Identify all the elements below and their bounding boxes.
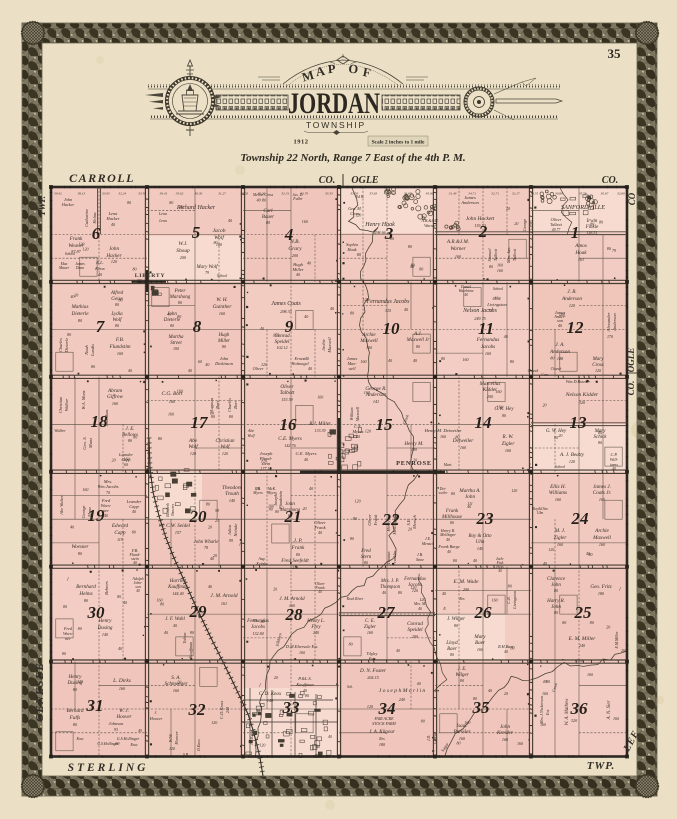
svg-text:Martha: Martha [168, 335, 185, 340]
svg-text:80: 80 [190, 630, 194, 635]
svg-text:40: 40 [442, 591, 446, 596]
svg-text:200: 200 [412, 634, 419, 639]
svg-text:15: 15 [376, 415, 394, 434]
svg-text:80: 80 [554, 588, 558, 593]
svg-text:315: 315 [385, 308, 391, 313]
svg-text:40: 40 [132, 509, 136, 514]
svg-text:Dieterle: Dieterle [71, 311, 90, 317]
svg-text:153.59: 153.59 [281, 397, 293, 402]
svg-text:240: 240 [313, 630, 320, 635]
svg-text:Bort: Bort [233, 400, 238, 409]
svg-text:Maxwell: Maxwell [327, 337, 332, 354]
svg-text:160: 160 [502, 737, 509, 742]
svg-text:157: 157 [175, 530, 182, 535]
svg-text:Fernandus: Fernandus [476, 337, 499, 343]
svg-text:80: 80 [253, 618, 257, 623]
svg-text:34.71: 34.71 [468, 192, 476, 196]
svg-text:32.17: 32.17 [512, 192, 520, 196]
svg-text:40: 40 [558, 323, 562, 328]
svg-text:160: 160 [273, 333, 279, 338]
svg-text:16: 16 [280, 415, 298, 434]
svg-text:Geo. Fritz: Geo. Fritz [590, 584, 611, 590]
svg-text:40: 40 [382, 590, 386, 595]
svg-text:99: 99 [229, 538, 233, 543]
svg-text:160: 160 [495, 389, 501, 394]
svg-text:weiler: weiler [439, 491, 449, 495]
svg-text:80: 80 [133, 434, 137, 439]
svg-text:PENROSE: PENROSE [396, 460, 432, 467]
svg-text:Wolber: Wolber [54, 428, 66, 433]
svg-text:Fuller: Fuller [292, 197, 303, 201]
svg-text:40: 40 [330, 306, 334, 311]
svg-text:School: School [217, 274, 227, 278]
svg-text:20: 20 [514, 221, 518, 226]
svg-text:Rock River: Rock River [346, 597, 364, 601]
svg-text:80: 80 [546, 679, 550, 684]
svg-text:11: 11 [478, 319, 494, 338]
svg-text:141: 141 [373, 399, 379, 404]
svg-text:40: 40 [260, 326, 264, 331]
svg-text:320: 320 [571, 718, 578, 723]
svg-text:20: 20 [112, 457, 116, 462]
svg-text:40: 40 [308, 366, 312, 371]
svg-text:Warner: Warner [424, 223, 436, 228]
svg-text:32.89: 32.89 [617, 192, 625, 196]
svg-text:40: 40 [188, 368, 192, 373]
svg-text:93: 93 [114, 727, 118, 732]
svg-text:40: 40 [118, 646, 122, 651]
svg-text:80: 80 [590, 221, 594, 226]
svg-text:Maxwell: Maxwell [359, 339, 378, 344]
svg-text:14: 14 [475, 413, 492, 432]
svg-text:Catharine: Catharine [84, 209, 89, 227]
svg-text:160: 160 [119, 686, 126, 691]
svg-text:38.13: 38.13 [78, 192, 86, 196]
svg-text:William: William [349, 407, 354, 420]
svg-text:40: 40 [305, 356, 309, 361]
svg-text:ner: ner [65, 636, 71, 641]
svg-text:TOWNSHIP: TOWNSHIP [306, 120, 366, 130]
svg-text:160: 160 [367, 630, 374, 635]
svg-text:40: 40 [228, 218, 232, 223]
svg-text:Archie: Archie [594, 528, 609, 534]
svg-text:School: School [65, 252, 75, 256]
svg-text:40: 40 [173, 623, 177, 628]
svg-text:160: 160 [613, 716, 619, 721]
svg-text:160: 160 [497, 268, 503, 273]
svg-text:Bressler: Bressler [453, 729, 471, 735]
svg-text:160: 160 [460, 445, 467, 450]
svg-text:Fernandus: Fernandus [246, 619, 269, 624]
svg-text:Jacobs: Jacobs [481, 344, 495, 350]
svg-text:N.B.: N.B. [289, 239, 300, 245]
svg-text:OGLE: OGLE [626, 348, 636, 373]
svg-text:160: 160 [599, 542, 606, 547]
svg-text:Frank: Frank [445, 509, 459, 514]
svg-text:70: 70 [106, 490, 110, 495]
svg-text:Rose: Rose [76, 737, 84, 741]
svg-text:142.76: 142.76 [284, 443, 296, 448]
svg-text:J.D.Knox: J.D.Knox [250, 731, 254, 746]
svg-text:Geo.: Geo. [576, 659, 583, 663]
svg-text:188: 188 [557, 356, 564, 361]
svg-text:G. W. Hey: G. W. Hey [546, 429, 567, 434]
svg-text:120: 120 [362, 297, 368, 302]
svg-text:Johnson: Johnson [109, 721, 124, 726]
svg-text:249.75: 249.75 [474, 316, 486, 321]
svg-text:Anderson: Anderson [549, 349, 570, 355]
svg-text:Anderson: Anderson [612, 312, 617, 331]
svg-text:Mensch: Mensch [421, 541, 434, 546]
svg-text:40: 40 [467, 504, 471, 509]
svg-text:80: 80 [128, 438, 132, 443]
svg-text:Mellinger: Mellinger [392, 517, 397, 536]
svg-text:200: 200 [487, 394, 494, 399]
svg-text:36.30: 36.30 [195, 192, 203, 196]
svg-text:Baer: Baer [475, 640, 486, 646]
svg-text:Henry Haak: Henry Haak [364, 222, 395, 228]
svg-text:Clarence: Clarence [547, 577, 566, 582]
svg-text:40: 40 [447, 550, 451, 554]
svg-text:33.33: 33.33 [325, 192, 333, 196]
svg-text:240: 240 [579, 643, 586, 648]
svg-text:Frank: Frank [291, 545, 305, 551]
svg-text:Maxwell Jr: Maxwell Jr [406, 338, 430, 343]
svg-text:W.W.: W.W. [168, 734, 173, 743]
svg-text:29: 29 [189, 602, 208, 621]
svg-text:Alfred: Alfred [110, 291, 124, 296]
svg-text:40: 40 [205, 362, 209, 367]
svg-text:30.80: 30.80 [555, 192, 563, 196]
svg-text:120: 120 [259, 742, 265, 747]
svg-text:160: 160 [497, 262, 503, 267]
svg-text:160: 160 [289, 603, 296, 608]
svg-text:Conrad: Conrad [433, 732, 437, 744]
svg-text:Stine: Stine [416, 557, 424, 562]
svg-text:40: 40 [413, 358, 417, 363]
svg-text:Archie: Archie [321, 339, 326, 352]
svg-text:160: 160 [364, 390, 370, 395]
svg-text:Archie: Archie [361, 333, 376, 338]
svg-text:39.96: 39.96 [426, 192, 434, 196]
svg-text:Hoover: Hoover [116, 715, 132, 720]
svg-text:80: 80 [78, 626, 82, 631]
svg-text:Wm.Jacobs: Wm.Jacobs [97, 484, 118, 489]
svg-text:200: 200 [463, 587, 470, 592]
svg-text:80: 80 [607, 246, 611, 251]
svg-text:33.59: 33.59 [351, 192, 359, 196]
svg-text:Township 22 North, Range 7 Eas: Township 22 North, Range 7 East of the 4… [240, 152, 465, 164]
svg-text:200: 200 [292, 253, 299, 258]
svg-text:40: 40 [309, 486, 313, 491]
svg-text:33.93: 33.93 [102, 192, 110, 196]
svg-text:40: 40 [612, 467, 616, 471]
svg-text:Church: Church [551, 367, 562, 371]
svg-text:20: 20 [74, 293, 78, 298]
svg-text:80: 80 [502, 413, 506, 418]
svg-text:Bernard: Bernard [66, 708, 84, 714]
svg-text:40: 40 [104, 513, 108, 518]
svg-text:Scale 2 inches to 1 mile: Scale 2 inches to 1 mile [372, 140, 425, 146]
svg-text:GENESEE: GENESEE [34, 662, 46, 722]
svg-text:80: 80 [460, 678, 464, 683]
svg-text:160: 160 [112, 401, 119, 406]
svg-text:160: 160 [497, 404, 503, 409]
svg-text:J.D.: J.D. [427, 735, 431, 741]
svg-text:160: 160 [156, 597, 162, 602]
svg-text:Mathias: Mathias [70, 304, 88, 310]
svg-text:5: 5 [192, 223, 201, 242]
svg-text:Williams: Williams [549, 490, 567, 496]
svg-text:Mary: Mary [592, 357, 605, 362]
svg-text:J. M. Arnold: J. M. Arnold [210, 593, 237, 599]
svg-text:33.79: 33.79 [300, 192, 308, 196]
svg-text:80: 80 [288, 513, 292, 518]
svg-text:102.12: 102.12 [277, 345, 288, 350]
svg-text:40: 40 [318, 590, 322, 594]
svg-text:E.: E. [442, 607, 446, 611]
svg-text:Alexander: Alexander [606, 312, 611, 332]
svg-text:140: 140 [477, 546, 484, 551]
svg-text:40: 40 [256, 708, 260, 713]
svg-text:Mrs. J. P.: Mrs. J. P. [380, 579, 399, 584]
svg-text:Rose: Rose [130, 743, 138, 747]
svg-text:12: 12 [567, 318, 585, 337]
svg-text:60: 60 [316, 745, 320, 749]
svg-text:39.41: 39.41 [160, 192, 168, 196]
svg-text:J. A. Kilgour: J. A. Kilgour [369, 730, 395, 735]
svg-text:298.33: 298.33 [280, 309, 292, 314]
svg-text:140: 140 [267, 698, 274, 703]
svg-text:Jacobs: Jacobs [251, 625, 265, 630]
svg-text:Mrs. Jas.: Mrs. Jas. [506, 247, 511, 264]
svg-text:Woesner: Woesner [71, 545, 88, 550]
svg-text:CO.: CO. [602, 175, 618, 186]
svg-text:40: 40 [494, 295, 498, 300]
svg-text:Edward: Edward [111, 523, 129, 529]
svg-text:120: 120 [355, 212, 361, 217]
svg-text:Fred Seefeldt: Fred Seefeldt [280, 557, 309, 564]
svg-text:Munz: Munz [87, 507, 92, 518]
svg-text:20: 20 [302, 506, 306, 511]
svg-text:160: 160 [599, 497, 606, 502]
svg-text:Roy & Otto: Roy & Otto [467, 534, 492, 539]
svg-text:160: 160 [317, 395, 323, 400]
svg-text:80: 80 [275, 510, 279, 514]
svg-text:80: 80 [132, 530, 136, 535]
svg-text:G.S.Hollinger: G.S.Hollinger [117, 736, 140, 741]
svg-text:Helms: Helms [92, 212, 97, 225]
svg-text:George: George [522, 219, 527, 232]
svg-text:120: 120 [77, 679, 83, 684]
svg-text:Aug.: Aug. [257, 557, 265, 561]
svg-text:Carl: Carl [263, 209, 273, 214]
svg-text:13: 13 [570, 413, 588, 432]
svg-text:80: 80 [508, 584, 512, 589]
svg-text:320: 320 [579, 400, 586, 405]
svg-text:Kreider: Kreider [496, 730, 514, 736]
svg-text:160: 160 [492, 597, 498, 602]
svg-text:37.26: 37.26 [240, 192, 248, 196]
svg-text:20: 20 [256, 486, 260, 491]
svg-text:Ed B.: Ed B. [355, 195, 364, 199]
svg-text:20: 20 [274, 675, 278, 680]
svg-text:D.Knox: D.Knox [197, 739, 201, 752]
svg-text:80: 80 [590, 620, 594, 625]
svg-text:LIBERTY: LIBERTY [135, 273, 166, 279]
svg-text:32.31: 32.31 [281, 192, 289, 196]
svg-text:46: 46 [208, 584, 212, 589]
svg-text:J. F. Wahl: J. F. Wahl [165, 617, 185, 622]
svg-text:W. J.: W. J. [119, 709, 129, 714]
svg-text:Christian: Christian [58, 396, 63, 413]
svg-text:Jacob: Jacob [213, 228, 226, 234]
svg-text:Cross: Cross [528, 220, 533, 230]
svg-text:80: 80 [510, 645, 514, 650]
svg-text:W. H.: W. H. [216, 297, 227, 303]
svg-text:20: 20 [504, 691, 508, 696]
svg-text:Peter: Peter [174, 289, 186, 294]
svg-text:Henry M. Detweiler: Henry M. Detweiler [424, 428, 462, 433]
svg-text:160: 160 [158, 522, 164, 527]
svg-text:40: 40 [464, 293, 468, 297]
svg-text:264.15: 264.15 [367, 675, 379, 680]
svg-text:140: 140 [102, 632, 109, 637]
svg-text:Zigler: Zigler [502, 441, 516, 447]
svg-text:17: 17 [191, 413, 210, 432]
svg-text:80: 80 [562, 620, 566, 625]
svg-text:Anderson: Anderson [561, 296, 582, 302]
svg-text:Lloyd: Lloyd [445, 641, 458, 646]
svg-text:A. J. Beatty: A. J. Beatty [559, 452, 585, 458]
svg-text:20: 20 [506, 206, 510, 211]
svg-text:Henry: Henry [98, 618, 113, 624]
svg-text:32.43: 32.43 [387, 192, 395, 196]
svg-text:J. E.: J. E. [457, 667, 466, 672]
svg-text:E.M.Miller: E.M.Miller [615, 631, 619, 649]
svg-text:20: 20 [213, 553, 217, 558]
svg-text:20: 20 [189, 507, 208, 526]
svg-text:R.L.: R.L. [95, 260, 104, 265]
svg-text:E. M. Miller: E. M. Miller [568, 636, 597, 642]
svg-text:240: 240 [399, 697, 406, 702]
svg-text:James Coats: James Coats [271, 301, 301, 307]
svg-text:80: 80 [91, 364, 95, 369]
svg-text:Coats Jr.: Coats Jr. [593, 490, 612, 496]
svg-text:Henry L.: Henry L. [306, 619, 325, 624]
svg-text:160: 160 [557, 542, 564, 547]
svg-text:80: 80 [177, 314, 181, 319]
svg-text:80: 80 [416, 344, 420, 349]
svg-text:80: 80 [456, 741, 460, 746]
svg-text:40: 40 [296, 272, 300, 277]
svg-text:40: 40 [504, 650, 508, 654]
svg-text:Church: Church [528, 369, 539, 373]
svg-text:80: 80 [489, 264, 493, 269]
svg-text:Mrs.J.Nickerson: Mrs.J.Nickerson [539, 696, 544, 725]
svg-text:John Hackett: John Hackett [466, 216, 495, 222]
svg-text:33.62: 33.62 [176, 192, 184, 196]
svg-text:80: 80 [170, 323, 174, 328]
svg-text:160: 160 [299, 650, 305, 655]
svg-text:80: 80 [450, 520, 454, 525]
svg-text:John: John [285, 502, 295, 507]
svg-text:Dickinson: Dickinson [214, 361, 234, 366]
svg-text:161: 161 [578, 257, 584, 262]
svg-text:40: 40 [164, 630, 168, 635]
svg-text:80: 80 [63, 604, 67, 609]
svg-text:180: 180 [598, 591, 605, 596]
svg-text:31: 31 [86, 696, 104, 715]
svg-text:140: 140 [229, 498, 236, 503]
svg-text:Nelson Kidder: Nelson Kidder [565, 392, 599, 398]
svg-text:40: 40 [498, 569, 502, 573]
svg-text:F.B.: F.B. [115, 337, 124, 343]
svg-text:160: 160 [505, 448, 512, 453]
svg-text:Behrers: Behrers [104, 581, 109, 595]
svg-text:160: 160 [82, 487, 88, 492]
svg-text:80: 80 [115, 741, 119, 746]
svg-text:Hacker: Hacker [61, 202, 75, 207]
svg-text:40: 40 [396, 649, 400, 653]
svg-text:Est.: Est. [545, 709, 550, 716]
svg-text:120: 120 [595, 368, 601, 373]
svg-text:120: 120 [569, 459, 576, 464]
svg-text:Thomas: Thomas [386, 551, 391, 565]
svg-text:Wolf: Wolf [188, 443, 199, 450]
svg-text:298.66: 298.66 [374, 230, 386, 235]
svg-text:120: 120 [211, 720, 217, 725]
svg-text:100: 100 [366, 345, 372, 350]
svg-text:C. E.: C. E. [365, 619, 375, 624]
svg-text:20: 20 [273, 587, 277, 592]
svg-text:80: 80 [364, 560, 368, 565]
svg-text:80: 80 [441, 356, 445, 361]
svg-text:Charles: Charles [58, 338, 63, 352]
svg-text:40: 40 [70, 525, 74, 530]
svg-text:D.M.Ebersole Est.: D.M.Ebersole Est. [285, 644, 318, 649]
svg-text:120: 120 [222, 451, 229, 456]
svg-text:A.R.&J.M.: A.R.&J.M. [446, 239, 469, 245]
svg-text:80: 80 [554, 610, 558, 615]
svg-text:Kauffman: Kauffman [167, 585, 188, 590]
svg-text:80: 80 [262, 198, 266, 203]
svg-text:CO.: CO. [626, 381, 636, 396]
svg-text:80: 80 [67, 332, 71, 337]
svg-text:S.B.: S.B. [183, 753, 189, 757]
svg-text:10: 10 [383, 319, 401, 338]
svg-text:160: 160 [169, 399, 176, 404]
svg-text:161: 161 [221, 601, 227, 606]
svg-text:CO.: CO. [319, 175, 335, 186]
svg-text:Helms: Helms [78, 591, 92, 597]
svg-text:Frank Barge: Frank Barge [437, 544, 460, 549]
svg-text:120: 120 [410, 585, 416, 590]
svg-text:Talbott: Talbott [512, 248, 517, 261]
svg-text:Bernhard: Bernhard [76, 584, 96, 590]
svg-text:120: 120 [365, 428, 371, 433]
svg-text:40: 40 [473, 558, 477, 563]
svg-text:Noah: Noah [84, 344, 89, 355]
svg-text:Keitzke: Keitzke [255, 562, 267, 566]
svg-text:40: 40 [123, 600, 127, 605]
svg-text:Anderson: Anderson [460, 200, 479, 205]
svg-text:177.13: 177.13 [261, 466, 272, 471]
svg-text:C. D. Knox: C. D. Knox [259, 692, 282, 697]
svg-text:40: 40 [418, 607, 422, 611]
svg-text:33.58: 33.58 [138, 192, 146, 196]
svg-text:80: 80 [473, 696, 477, 701]
